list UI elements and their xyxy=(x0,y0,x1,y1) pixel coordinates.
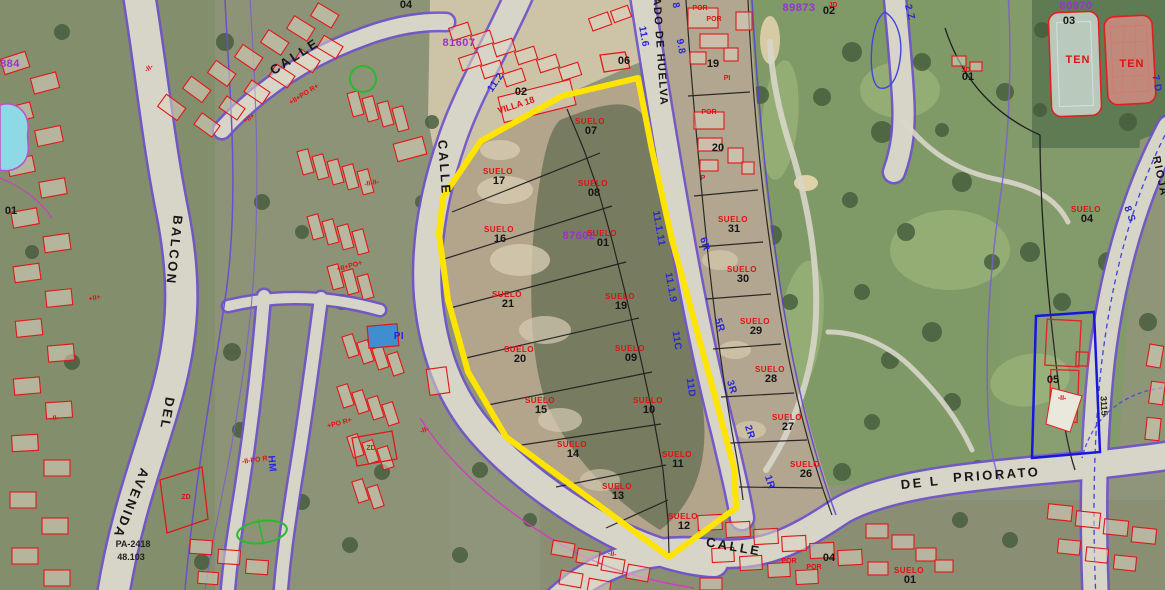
parcel-suelo-number-16-30: 30 xyxy=(737,273,749,285)
parcel-suelo-number-7-20: 20 xyxy=(514,353,526,365)
parcel-suelo-number-3-16: 16 xyxy=(494,233,506,245)
parcel-04-nw: 04 xyxy=(400,0,413,11)
parcel-suelo-number-14-12: 12 xyxy=(678,520,690,532)
bldg-code-pi: PI xyxy=(724,75,731,82)
road-code-hm: HM xyxy=(265,455,277,472)
parcel-suelo-number-13-13: 13 xyxy=(612,490,624,502)
parcel-suelo-number-12-11: 11 xyxy=(672,458,684,470)
bldg-code-zd: ZD xyxy=(181,494,190,501)
bldg-code-por: POR xyxy=(706,16,721,23)
bldg-code-por: POR xyxy=(701,109,716,116)
block-code-89873: 89873 xyxy=(782,2,815,14)
parcel-suelo-number-15-31: 31 xyxy=(728,223,740,235)
parcel-suelo-number-19-27: 27 xyxy=(782,421,794,433)
blue-parcel-05 xyxy=(1032,312,1100,458)
parcel-suelo-number-21-04: 04 xyxy=(1081,213,1094,225)
parcel-03-tennis: 03 xyxy=(1063,15,1075,27)
bldg-code-jd: JD xyxy=(962,67,971,74)
parcel-suelo-number-8-09: 09 xyxy=(625,352,637,364)
parcel-04-se: 04 xyxy=(823,552,836,564)
block-code-81607: 81607 xyxy=(442,37,475,49)
parcel-suelo-number-5-21: 21 xyxy=(502,298,514,310)
parcel-suelo-number-0-07: 07 xyxy=(585,125,597,137)
parcel-02-villa: 02 xyxy=(515,86,527,98)
parcel-suelo-number-1-17: 17 xyxy=(493,175,505,187)
block-code-80970: 80970 xyxy=(1059,0,1092,12)
parcel-20: 20 xyxy=(712,142,724,154)
ref-pa-2418: PA-2418 xyxy=(116,539,151,549)
parcel-suelo-number-9-15: 15 xyxy=(535,404,547,416)
bldg-code-por: POR xyxy=(692,5,707,12)
parcel-suelo-number-22-01: 01 xyxy=(904,574,916,586)
parcel-06: 06 xyxy=(618,55,630,67)
label-tennis-court-1: TEN xyxy=(1066,54,1091,66)
parcel-suelo-number-17-29: 29 xyxy=(750,325,762,337)
bldg-code-jd: JD xyxy=(829,2,838,9)
parcel-suelo-number-20-26: 26 xyxy=(800,468,812,480)
bldg-code-ii: -II- xyxy=(1058,395,1068,402)
bldg-code-por: POR xyxy=(806,564,821,571)
parcel-01-west: 01 xyxy=(5,205,17,217)
parcel-suelo-number-4-01: 01 xyxy=(597,237,609,249)
map-canvas[interactable]: CALLECALLEBALCONDELAVENIDACALLEDE LPRIOR… xyxy=(0,0,1165,590)
bldg-code-zd: ZD xyxy=(366,445,375,452)
bldg-code-p: P xyxy=(701,175,706,182)
pool-code-pi: PI xyxy=(394,331,404,342)
parcel-suelo-number-6-19: 19 xyxy=(615,300,627,312)
bldg-code-ii: -II- xyxy=(607,550,617,558)
ref-3115: 3115 xyxy=(1098,396,1109,416)
cadastral-map-svg: CALLECALLEBALCONDELAVENIDACALLEDE LPRIOR… xyxy=(0,0,1165,590)
ref-48-103: 48.103 xyxy=(117,552,145,562)
label-tennis-court-2: TEN xyxy=(1120,58,1145,70)
parcel-suelo-number-11-14: 14 xyxy=(567,448,580,460)
pool-lagoon xyxy=(0,104,28,171)
parcel-suelo-number-10-10: 10 xyxy=(643,404,655,416)
parcel-19: 19 xyxy=(707,58,719,70)
parcel-suelo-number-18-28: 28 xyxy=(765,373,777,385)
parcel-suelo-number-2-08: 08 xyxy=(588,187,600,199)
bldg-code-por: POR xyxy=(781,558,796,565)
parcel-05-east: 05 xyxy=(1047,374,1059,386)
block-code-884: 884 xyxy=(0,58,20,70)
